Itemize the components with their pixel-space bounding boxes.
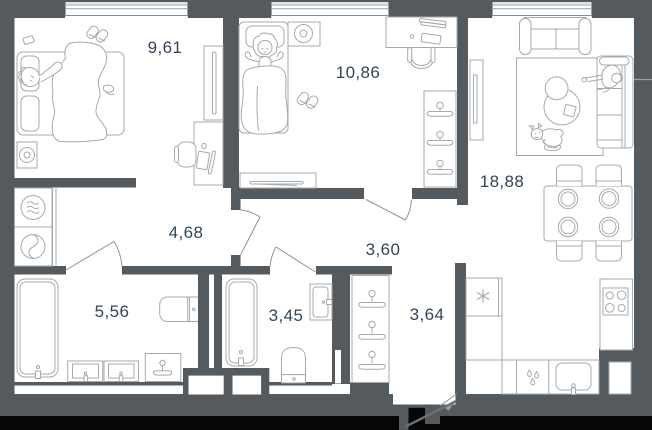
svg-text:3,45: 3,45 (269, 306, 304, 325)
svg-text:5,56: 5,56 (95, 302, 130, 321)
svg-text:10,86: 10,86 (336, 63, 381, 82)
svg-text:3,64: 3,64 (410, 305, 445, 324)
svg-text:3,60: 3,60 (366, 240, 401, 259)
svg-text:18,88: 18,88 (480, 172, 525, 191)
svg-text:4,68: 4,68 (169, 223, 204, 242)
svg-text:9,61: 9,61 (148, 38, 183, 57)
